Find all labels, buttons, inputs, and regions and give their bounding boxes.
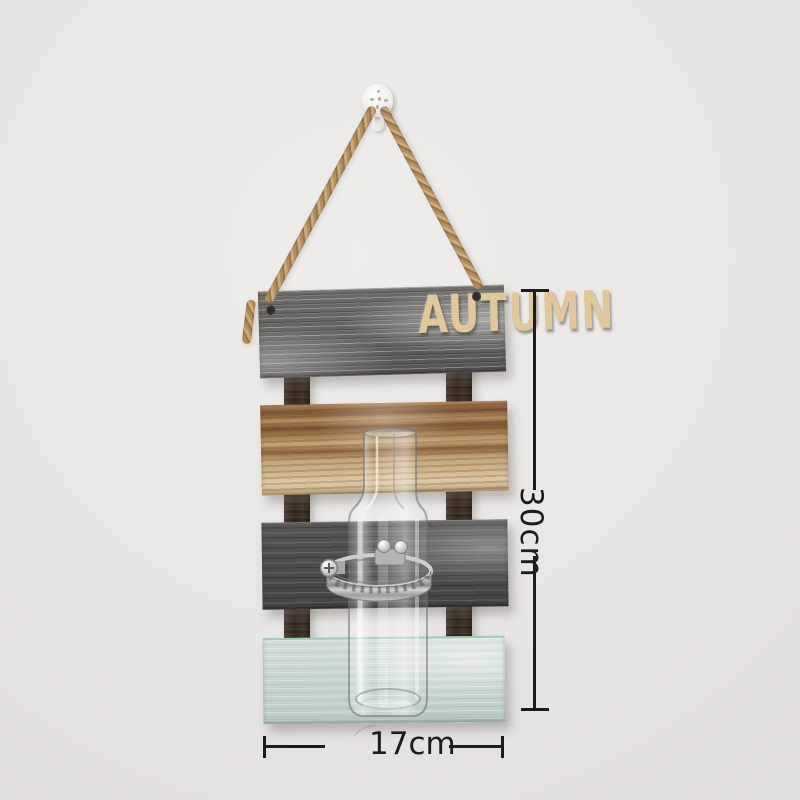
frame-rail-right bbox=[446, 338, 472, 660]
plank-mint-green bbox=[263, 636, 506, 725]
frame-rail-left bbox=[284, 342, 310, 662]
hook-pin-dot bbox=[384, 99, 388, 103]
hook-pin-dot bbox=[376, 105, 380, 109]
plank-dark-gray bbox=[261, 519, 508, 609]
hook-pin-dot bbox=[377, 90, 381, 94]
rope-hole-left bbox=[266, 305, 275, 315]
plank-autumn-gray: AUTUMN bbox=[258, 285, 506, 379]
sign-title: AUTUMN bbox=[417, 285, 615, 342]
product-photo-scene: AUTUMN bbox=[0, 0, 800, 800]
plank-natural-wood bbox=[260, 401, 509, 496]
hook-pin-dot bbox=[370, 98, 374, 102]
hook-pin-dot bbox=[378, 97, 382, 101]
